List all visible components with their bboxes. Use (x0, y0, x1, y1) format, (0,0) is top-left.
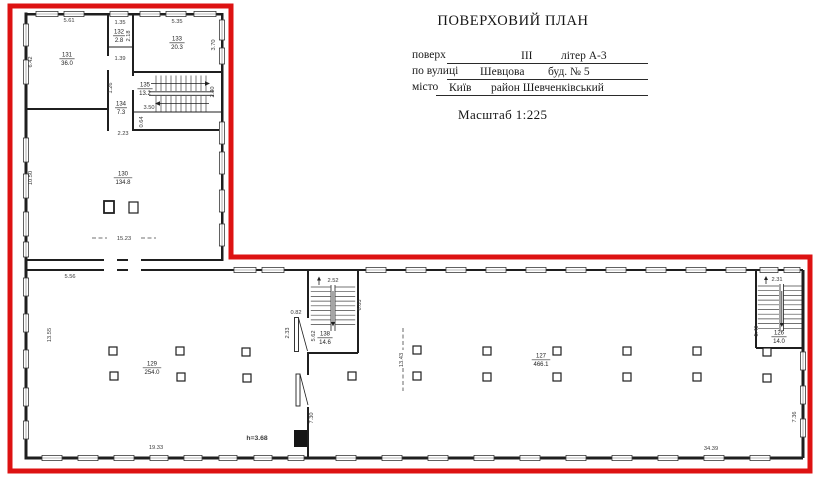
room-number: 126 (774, 331, 785, 337)
dimension-label: 34.39 (704, 446, 718, 452)
room-number: 130 (118, 172, 129, 178)
room-area: 7.3 (117, 110, 126, 116)
floor-plan-drawing: 13136.01322.813320.31347.313513.2130134.… (0, 0, 819, 480)
door-leaf (295, 318, 299, 352)
column (129, 202, 138, 213)
room-area: 14.0 (773, 339, 785, 345)
door-swing (300, 374, 308, 405)
district-value: район Шевченківський (491, 82, 604, 94)
room-area: 2.8 (115, 38, 124, 44)
dimension-label: 6.03 (357, 299, 363, 310)
room-area: 13.2 (139, 91, 151, 97)
column (243, 374, 251, 382)
room-area: 134.8 (115, 180, 131, 186)
door-leaves (295, 318, 309, 407)
column (348, 372, 356, 380)
dimension-label: 7.36 (792, 411, 798, 422)
room-label-126: 12614.0 (771, 331, 786, 346)
column (483, 373, 491, 381)
dimension-label: 3.50 (143, 105, 154, 111)
dimension-label: 2.40 (210, 86, 216, 97)
room-number: 138 (320, 332, 331, 338)
dimension-label: 0.64 (139, 116, 145, 127)
room-number: 133 (172, 37, 183, 43)
floor-value: III (521, 50, 533, 62)
dimension-label: 0.82 (290, 310, 301, 316)
room-number: 135 (140, 83, 151, 89)
dimension-label: 3.70 (211, 39, 217, 50)
dimension-label: 2.31 (771, 277, 782, 283)
dimension-label: h=3.68 (246, 435, 268, 442)
dimension-label: 1.26 (108, 82, 114, 93)
room-label-134: 1347.3 (115, 102, 127, 117)
column (176, 347, 184, 355)
city-label: місто (412, 81, 438, 93)
city-line: Київ район Шевченківський (436, 80, 648, 96)
dimension-label: 2.52 (327, 278, 338, 284)
window-symbols (23, 11, 805, 460)
door-swing (299, 318, 308, 351)
room-area: 14.6 (319, 340, 331, 346)
room-label-133: 13320.3 (169, 37, 184, 52)
dimension-label: 5.49 (754, 325, 760, 336)
liter-value: літер А-3 (561, 50, 607, 62)
column (623, 347, 631, 355)
dimension-label: 13.55 (47, 328, 53, 342)
room-number: 127 (536, 354, 547, 360)
column (104, 201, 114, 213)
walls (26, 13, 803, 460)
room-number: 129 (147, 362, 158, 368)
column (110, 372, 118, 380)
city-value: Київ (449, 82, 471, 94)
dimension-label: 7.30 (309, 412, 315, 423)
stair-arrow-head (331, 322, 335, 327)
column (413, 346, 421, 354)
dimension-label: 2.18 (126, 30, 132, 41)
column (763, 348, 771, 356)
stair-arrow-head (205, 81, 210, 85)
dashed-dimension-lines (92, 238, 403, 391)
street-line: Шевцова буд. № 5 (447, 64, 648, 80)
room-label-135: 13513.2 (137, 83, 152, 98)
dimension-label: 10.50 (28, 171, 34, 185)
stair-arrow-head (764, 276, 768, 280)
floor-label: поверх (412, 49, 446, 61)
column (553, 347, 561, 355)
column (623, 373, 631, 381)
room-label-132: 1322.8 (113, 30, 125, 45)
column (763, 374, 771, 382)
dimension-label: 5.35 (171, 19, 182, 25)
dimension-label: 2.23 (117, 131, 128, 137)
room-number: 134 (116, 102, 127, 108)
dimension-label: 5.61 (63, 18, 74, 24)
dimension-label: 5.56 (64, 274, 75, 280)
room-number: 131 (62, 53, 73, 59)
dimension-label: 5.62 (311, 330, 317, 341)
room-number: 132 (114, 30, 125, 36)
door-leaf (296, 374, 300, 406)
room-label-130: 130134.8 (114, 172, 133, 187)
street-value: Шевцова (480, 66, 524, 78)
room-area: 20.3 (171, 45, 183, 51)
columns (104, 201, 771, 382)
dimension-label: 2.33 (285, 327, 291, 338)
column (242, 348, 250, 356)
dimension-label: 1.35 (114, 20, 125, 26)
room-label-129: 129254.0 (143, 362, 162, 377)
room-label-127: 127466.1 (532, 354, 551, 369)
column (483, 347, 491, 355)
column (177, 373, 185, 381)
column (413, 372, 421, 380)
room-area: 466.1 (533, 362, 549, 368)
dimension-label: 13.43 (399, 353, 405, 367)
column (109, 347, 117, 355)
column (693, 347, 701, 355)
column (553, 373, 561, 381)
building-value: буд. № 5 (548, 66, 590, 78)
room-area: 254.0 (144, 370, 160, 376)
room-label-138: 13814.6 (317, 332, 332, 347)
room-label-131: 13136.0 (59, 53, 74, 68)
dimension-label: 6.42 (28, 56, 34, 67)
dimension-label: 15.23 (117, 236, 131, 242)
page-title: ПОВЕРХОВИЙ ПЛАН (402, 13, 624, 30)
dimension-label: 1.39 (114, 56, 125, 62)
scale-note: Масштаб 1:225 (458, 107, 547, 123)
column (693, 373, 701, 381)
floor-line: III літер А-3 (447, 48, 648, 64)
room-area: 36.0 (61, 61, 73, 67)
stair-arrow-head (317, 277, 321, 281)
dimension-label: 19.33 (149, 445, 163, 451)
wall-pier (294, 430, 307, 447)
